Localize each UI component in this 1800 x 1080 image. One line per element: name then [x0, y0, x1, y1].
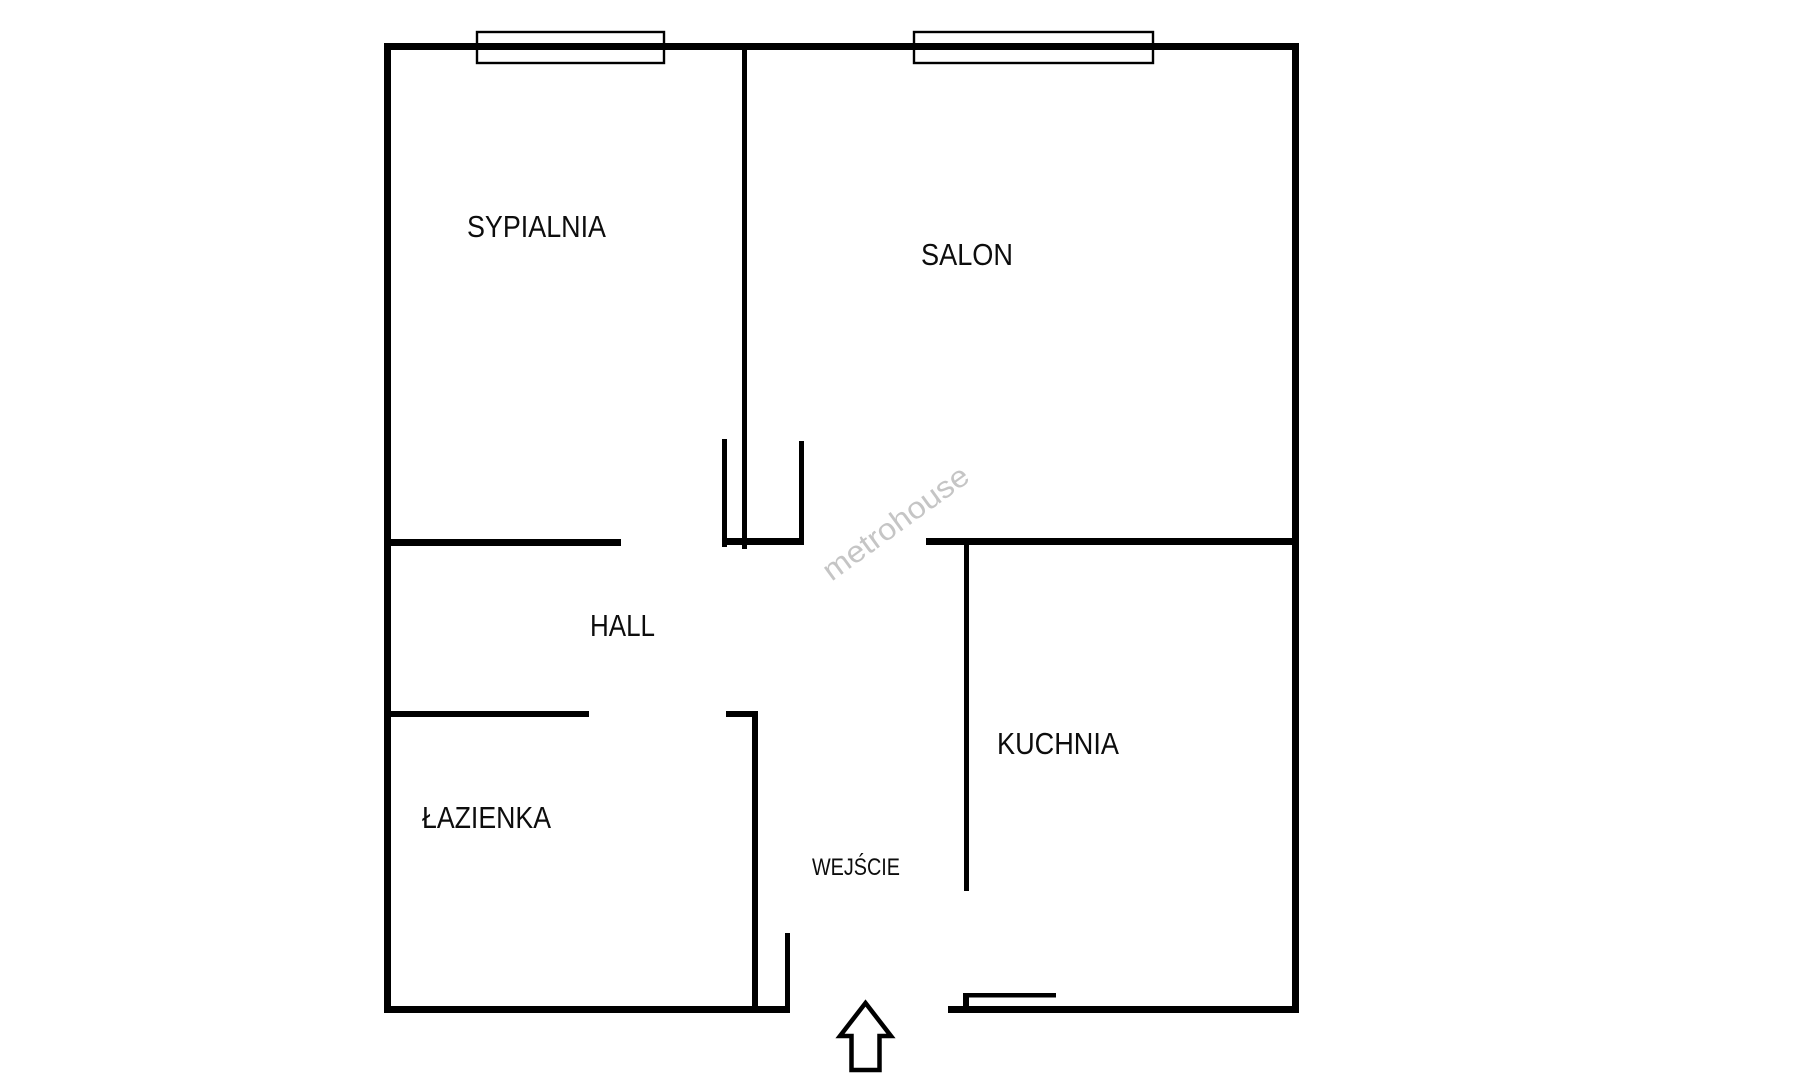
svg-text:SYPIALNIA: SYPIALNIA: [467, 210, 607, 244]
svg-text:KUCHNIA: KUCHNIA: [997, 727, 1120, 761]
svg-text:ŁAZIENKA: ŁAZIENKA: [422, 801, 552, 835]
svg-text:SALON: SALON: [921, 238, 1013, 272]
svg-text:WEJŚCIE: WEJŚCIE: [812, 853, 900, 881]
svg-text:HALL: HALL: [590, 609, 655, 643]
